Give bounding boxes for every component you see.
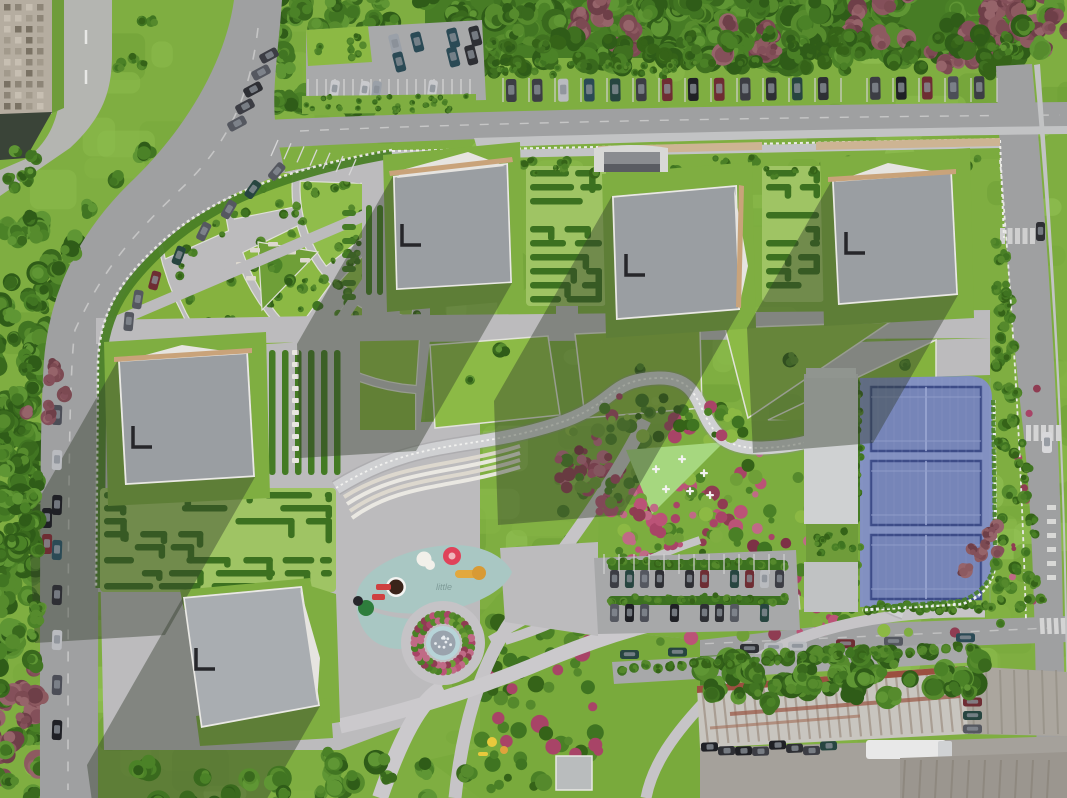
svg-text:little: little	[436, 582, 452, 592]
